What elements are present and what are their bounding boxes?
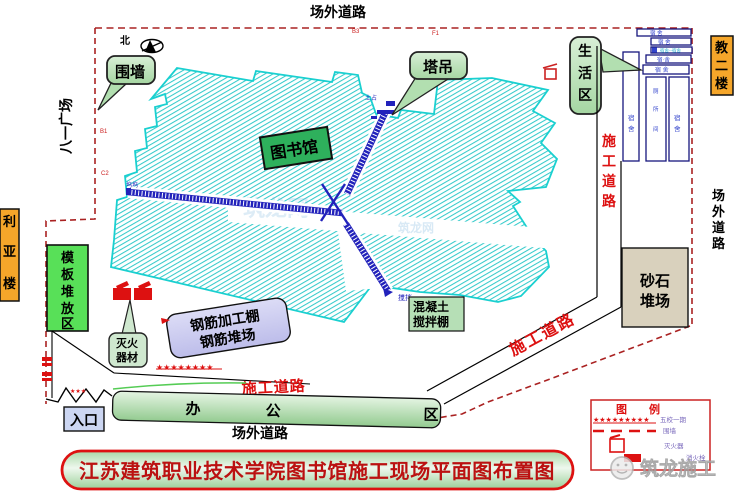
svg-text:厕: 厕 bbox=[653, 88, 659, 95]
svg-text:宿舍--宿舍: 宿舍--宿舍 bbox=[660, 47, 681, 54]
svg-text:宿: 宿 bbox=[628, 113, 635, 122]
svg-text:图 例: 图 例 bbox=[616, 402, 660, 416]
svg-text:器材: 器材 bbox=[115, 350, 138, 364]
svg-text:亚: 亚 bbox=[3, 244, 16, 259]
svg-text:区: 区 bbox=[423, 407, 438, 424]
svg-text:所: 所 bbox=[653, 105, 659, 113]
svg-text:道: 道 bbox=[712, 220, 725, 235]
svg-text:宿: 宿 bbox=[674, 113, 681, 122]
svg-text:生: 生 bbox=[578, 43, 592, 59]
svg-text:搅拌棚: 搅拌棚 bbox=[413, 314, 449, 329]
svg-text:模: 模 bbox=[61, 250, 75, 265]
svg-text:江苏建筑职业技术学院图书馆施工现场平面图布置图: 江苏建筑职业技术学院图书馆施工现场平面图布置图 bbox=[79, 459, 555, 483]
svg-text:F1: F1 bbox=[432, 31, 440, 37]
svg-text:区: 区 bbox=[61, 316, 74, 331]
svg-text:五校一期: 五校一期 bbox=[660, 415, 687, 424]
svg-text:入口: 入口 bbox=[70, 412, 98, 428]
svg-text:楼: 楼 bbox=[3, 276, 16, 291]
svg-text:坞坞: 坞坞 bbox=[126, 181, 138, 189]
svg-text:C2: C2 bbox=[101, 171, 109, 177]
svg-text:二: 二 bbox=[715, 58, 728, 73]
svg-text:B1: B1 bbox=[100, 129, 108, 135]
svg-text:宿 舍: 宿 舍 bbox=[650, 29, 663, 37]
svg-text:★★★★★★★★: ★★★★★★★★ bbox=[156, 363, 213, 372]
svg-text:土占: 土占 bbox=[365, 94, 377, 102]
svg-text:工: 工 bbox=[602, 153, 616, 169]
svg-text:灭火器: 灭火器 bbox=[664, 442, 684, 450]
svg-text:区: 区 bbox=[578, 87, 592, 103]
svg-text:★★★: ★★★ bbox=[70, 388, 86, 395]
svg-text:施: 施 bbox=[602, 133, 616, 149]
svg-text:砂石: 砂石 bbox=[640, 272, 670, 290]
svg-text:场外道路: 场外道路 bbox=[232, 425, 289, 441]
svg-text:八一广场: 八一广场 bbox=[58, 98, 74, 155]
svg-text:外: 外 bbox=[711, 204, 725, 219]
svg-text:围墙: 围墙 bbox=[115, 63, 145, 81]
svg-text:板: 板 bbox=[61, 267, 75, 282]
svg-text:B3: B3 bbox=[352, 29, 360, 35]
svg-text:道: 道 bbox=[602, 173, 616, 189]
svg-text:场外道路: 场外道路 bbox=[310, 4, 367, 20]
svg-text:宿·舍: 宿·舍 bbox=[657, 56, 670, 64]
svg-text:北: 北 bbox=[120, 34, 130, 47]
svg-text:宿 舍: 宿 舍 bbox=[655, 66, 669, 74]
svg-text:堆: 堆 bbox=[61, 284, 74, 299]
svg-text:路: 路 bbox=[712, 236, 726, 251]
svg-text:间: 间 bbox=[653, 125, 659, 133]
svg-text:利: 利 bbox=[3, 214, 16, 229]
svg-text:公: 公 bbox=[265, 403, 280, 420]
svg-text:塔吊: 塔吊 bbox=[423, 58, 453, 76]
svg-text:混凝土: 混凝土 bbox=[413, 299, 449, 314]
svg-text:灭火: 灭火 bbox=[115, 337, 139, 350]
svg-text:筑龙施工: 筑龙施工 bbox=[640, 457, 716, 480]
svg-text:办: 办 bbox=[185, 400, 200, 418]
svg-text:教: 教 bbox=[714, 40, 729, 55]
svg-text:舍: 舍 bbox=[628, 124, 635, 133]
svg-text:场: 场 bbox=[712, 188, 725, 203]
svg-text:路: 路 bbox=[602, 193, 617, 209]
svg-text:舍: 舍 bbox=[674, 124, 681, 133]
svg-text:宿 舍: 宿 舍 bbox=[658, 38, 671, 46]
svg-text:筑龙网: 筑龙网 bbox=[398, 220, 434, 235]
svg-text:放: 放 bbox=[60, 301, 75, 316]
svg-text:围墙: 围墙 bbox=[663, 426, 677, 435]
svg-text:活: 活 bbox=[578, 65, 592, 81]
svg-text:堆场: 堆场 bbox=[640, 292, 670, 310]
svg-text:楼: 楼 bbox=[715, 76, 728, 91]
